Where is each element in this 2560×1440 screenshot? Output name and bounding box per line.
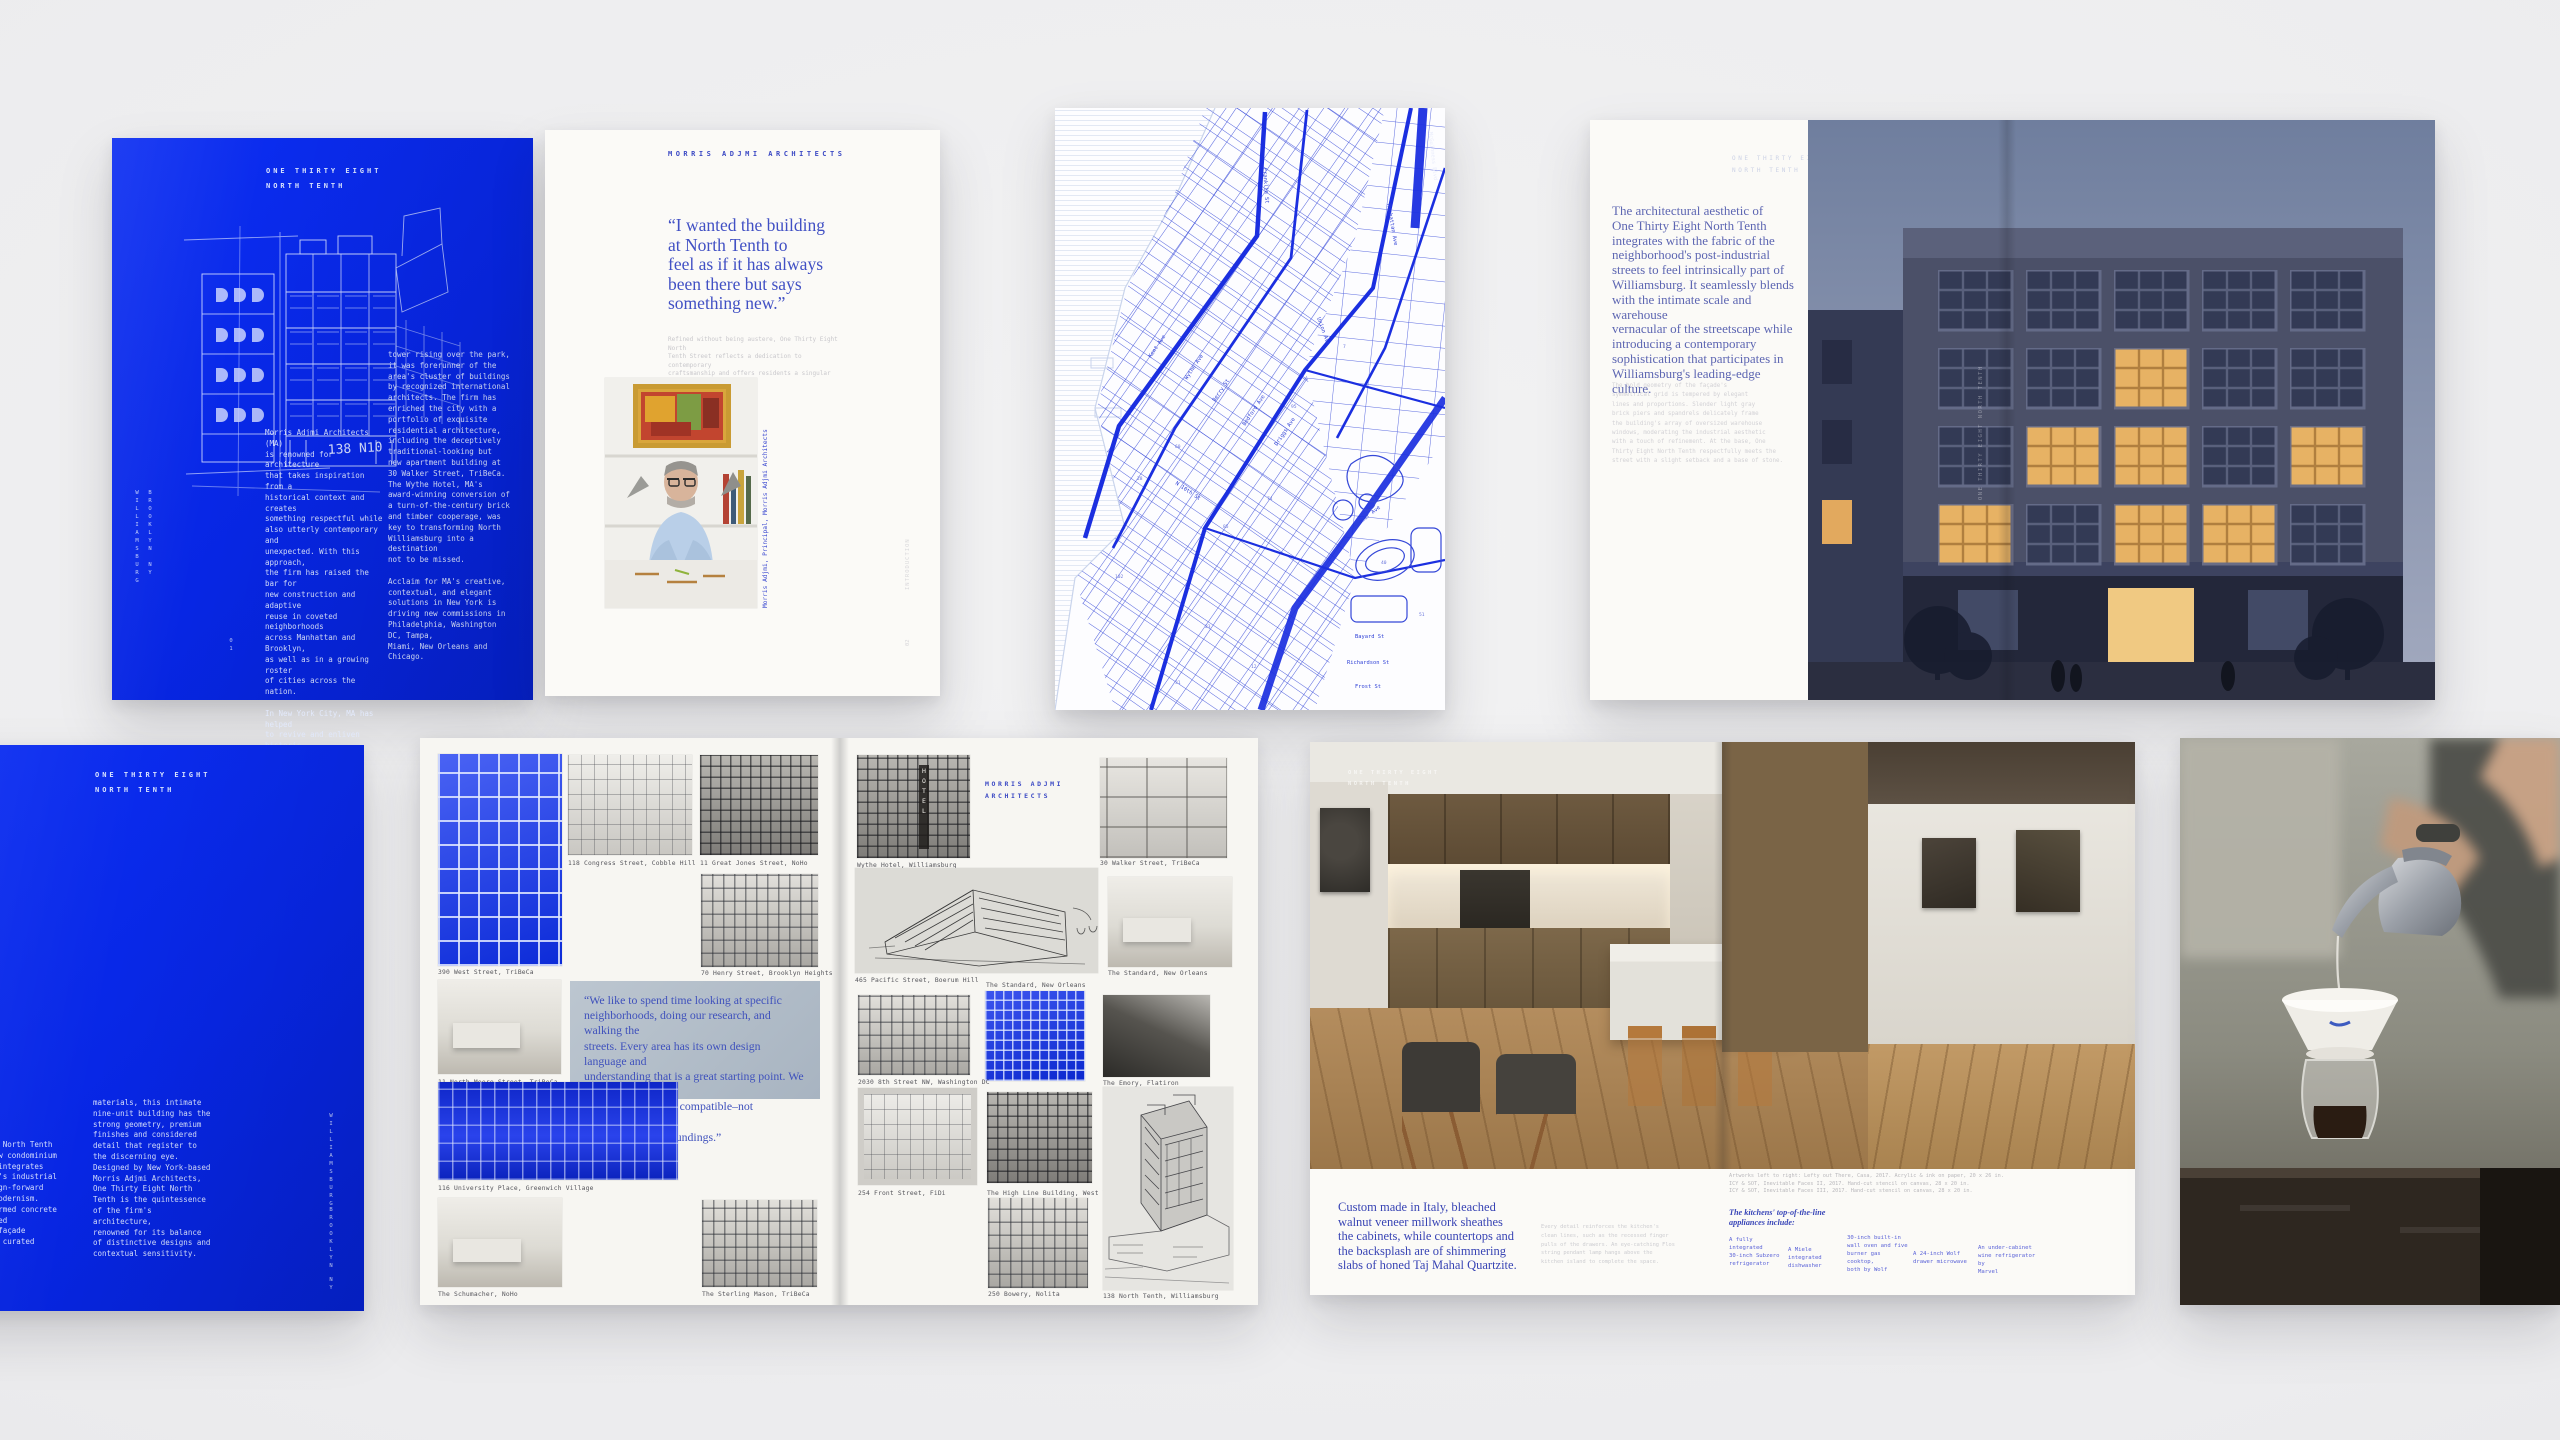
svg-text:23: 23 [1205, 624, 1211, 630]
portfolio-header: MORRIS ADJMIARCHITECTS [985, 778, 1063, 802]
photo-walker-street [1100, 758, 1227, 858]
intro-page: MORRIS ADJMI ARCHITECTS “I wanted the bu… [545, 130, 940, 696]
svg-text:Bayard St: Bayard St [1355, 634, 1384, 640]
caption-schumacher: The Schumacher, NoHo [438, 1291, 518, 1299]
painting [633, 384, 731, 448]
caption-front-street: 254 Front Street, FiDi [858, 1190, 946, 1198]
kitchen-statement: Custom made in Italy, bleached walnut ve… [1338, 1200, 1523, 1273]
coffee-photo [2180, 738, 2560, 1305]
intro-page-number: 02 [905, 616, 911, 646]
svg-text:85: 85 [1223, 524, 1229, 530]
carafe [2302, 1060, 2378, 1138]
caption-west-street: 390 West Street, TriBeCa [438, 969, 534, 977]
caption-henry-street: 70 Henry Street, Brooklyn Heights [701, 970, 833, 978]
cover-page-marker: 01 [228, 638, 234, 654]
svg-text:28: 28 [1137, 476, 1143, 482]
svg-text:31: 31 [1175, 680, 1181, 686]
caption-great-jones: 11 Great Jones Street, NoHo [700, 860, 808, 868]
foreground-chair-1 [1402, 1042, 1480, 1169]
hotel-sign: HOTEL [919, 765, 929, 849]
intro-side-vertical: INTRODUCTION [905, 470, 911, 590]
photo-north-moore [438, 980, 561, 1074]
photo-high-line-building [987, 1092, 1092, 1183]
portfolio-spread: 390 West Street, TriBeCa 118 Congress St… [420, 738, 1258, 1305]
svg-text:60: 60 [1175, 444, 1181, 450]
photo-henry-street [701, 874, 818, 967]
caption-138-north-tenth: 138 North Tenth, Williamsburg [1103, 1293, 1219, 1301]
svg-text:95: 95 [1291, 404, 1297, 410]
photo-schumacher [438, 1198, 562, 1287]
hall-floor [1868, 1044, 2135, 1169]
svg-text:102: 102 [1115, 574, 1124, 580]
svg-text:51: 51 [1419, 612, 1425, 618]
cover-vertical-neighborhood: WILLIAMSBURG [134, 490, 140, 665]
portrait-caption: Morris Adjmi, Principal, Morris Adjmi Ar… [762, 410, 769, 608]
cover-vertical-borough: BROOKLYN NY [147, 490, 153, 665]
hall-wall [1868, 804, 2135, 1044]
svg-text:Frost St: Frost St [1355, 684, 1381, 690]
kitchen-photo: ONE THIRTY EIGHTNORTH TENTH [1310, 742, 2135, 1169]
artwork-credits: Artworks left to right: Lefty out There,… [1729, 1173, 2029, 1196]
photo-bowery [988, 1198, 1088, 1288]
svg-text:Richardson St: Richardson St [1347, 660, 1389, 666]
upper-cabinets [1388, 794, 1670, 864]
photo-vertical-title: ONE THIRTY EIGHT NORTH TENTH [1978, 280, 1984, 500]
kitchen-spread: ONE THIRTY EIGHTNORTH TENTH Custom made … [1310, 742, 2135, 1295]
caption-university-place: 116 University Place, Greenwich Village [438, 1185, 594, 1193]
photo-front-street [858, 1088, 977, 1185]
intro-header: MORRIS ADJMI ARCHITECTS [668, 150, 845, 158]
appliance-col-4: A 24-inch Wolf drawer microwave [1913, 1250, 1971, 1266]
cover-title: ONE THIRTY EIGHTNORTH TENTH [266, 164, 381, 194]
kitchen-detail: Every detail reinforces the kitchen's cl… [1541, 1223, 1711, 1267]
brochure-cover: ONE THIRTY EIGHTNORTH TENTH [112, 138, 533, 700]
svg-text:12: 12 [1251, 664, 1257, 670]
photo-standard-interior [1108, 877, 1232, 967]
photo-standard-tower [985, 991, 1085, 1081]
aesthetic-body: The bold geometry of the façade's symmet… [1612, 382, 1802, 467]
kitchen-overlay-title: ONE THIRTY EIGHTNORTH TENTH [1348, 768, 1439, 790]
williamsburg-map: Franklin St Kent Ave Wythe Ave Berry St … [1055, 108, 1445, 710]
hall-ceiling [1868, 742, 2135, 804]
appliances-header: The kitchens' top-of-the-line appliances… [1729, 1208, 1825, 1227]
appliance-col-2: A Miele integrated dishwasher [1788, 1246, 1843, 1270]
photo-sterling-mason [702, 1200, 817, 1287]
appliance-col-5: An under-cabinet wine refrigerator by Ma… [1978, 1244, 2040, 1276]
photo-pacific-sketch [855, 868, 1098, 973]
map-page: Franklin St Kent Ave Wythe Ave Berry St … [1055, 108, 1445, 710]
photo-138n10-axon [1103, 1087, 1233, 1290]
photo-west-street [438, 754, 562, 966]
tall-cabinets [1722, 742, 1868, 1052]
caption-dc-street: 2030 8th Street NW, Washington DC [858, 1079, 990, 1087]
photo-wythe-hotel: HOTEL [857, 755, 970, 858]
portrait-photo [605, 378, 757, 608]
artwork-hall-1 [1922, 838, 1976, 908]
caption-pacific-street: 465 Pacific Street, Boerum Hill [855, 977, 979, 985]
svg-text:7: 7 [1343, 344, 1346, 350]
photo-university-place [438, 1082, 678, 1180]
caption-bowery: 250 Bowery, Nolita [988, 1291, 1060, 1299]
photo-emory [1103, 995, 1210, 1077]
appliance-col-1: A fully integrated 30-inch Subzero refri… [1729, 1236, 1784, 1268]
photo-congress-street [568, 755, 692, 855]
caption-standard-interior: The Standard, New Orleans [1108, 970, 1208, 978]
caption-sterling-mason: The Sterling Mason, TriBeCa [702, 1291, 810, 1299]
caption-standard-tower: The Standard, New Orleans [986, 982, 1086, 990]
intro-quote: “I wanted the building at North Tenth to… [668, 216, 868, 314]
artwork-hall-2 [2016, 830, 2080, 912]
dusk-facade-photo: ONE THIRTY EIGHT NORTH TENTH [1808, 120, 2435, 700]
context-sheen [0, 745, 364, 1311]
photo-great-jones [700, 755, 818, 855]
aesthetic-spread: ONE THIRTY EIGHTNORTH TENTH The architec… [1590, 120, 2435, 700]
appliance-col-3: 30-inch built-in wall oven and five burn… [1847, 1234, 1909, 1274]
foreground-chair-2 [1496, 1054, 1576, 1169]
artwork-left [1320, 808, 1370, 892]
cover-text-col2: tower rising over the park, it was forer… [388, 350, 510, 663]
caption-walker-street: 30 Walker Street, TriBeCa [1100, 860, 1200, 868]
caption-congress-street: 118 Congress Street, Cobble Hill [568, 860, 696, 868]
photo-dc-street [858, 995, 970, 1075]
svg-text:74: 74 [1267, 496, 1273, 502]
svg-text:40: 40 [1381, 560, 1387, 566]
aesthetic-lead: The architectural aesthetic of One Thirt… [1612, 204, 1802, 396]
context-page: ONE THIRTY EIGHTNORTH TENTH One Thirty E… [0, 745, 364, 1311]
